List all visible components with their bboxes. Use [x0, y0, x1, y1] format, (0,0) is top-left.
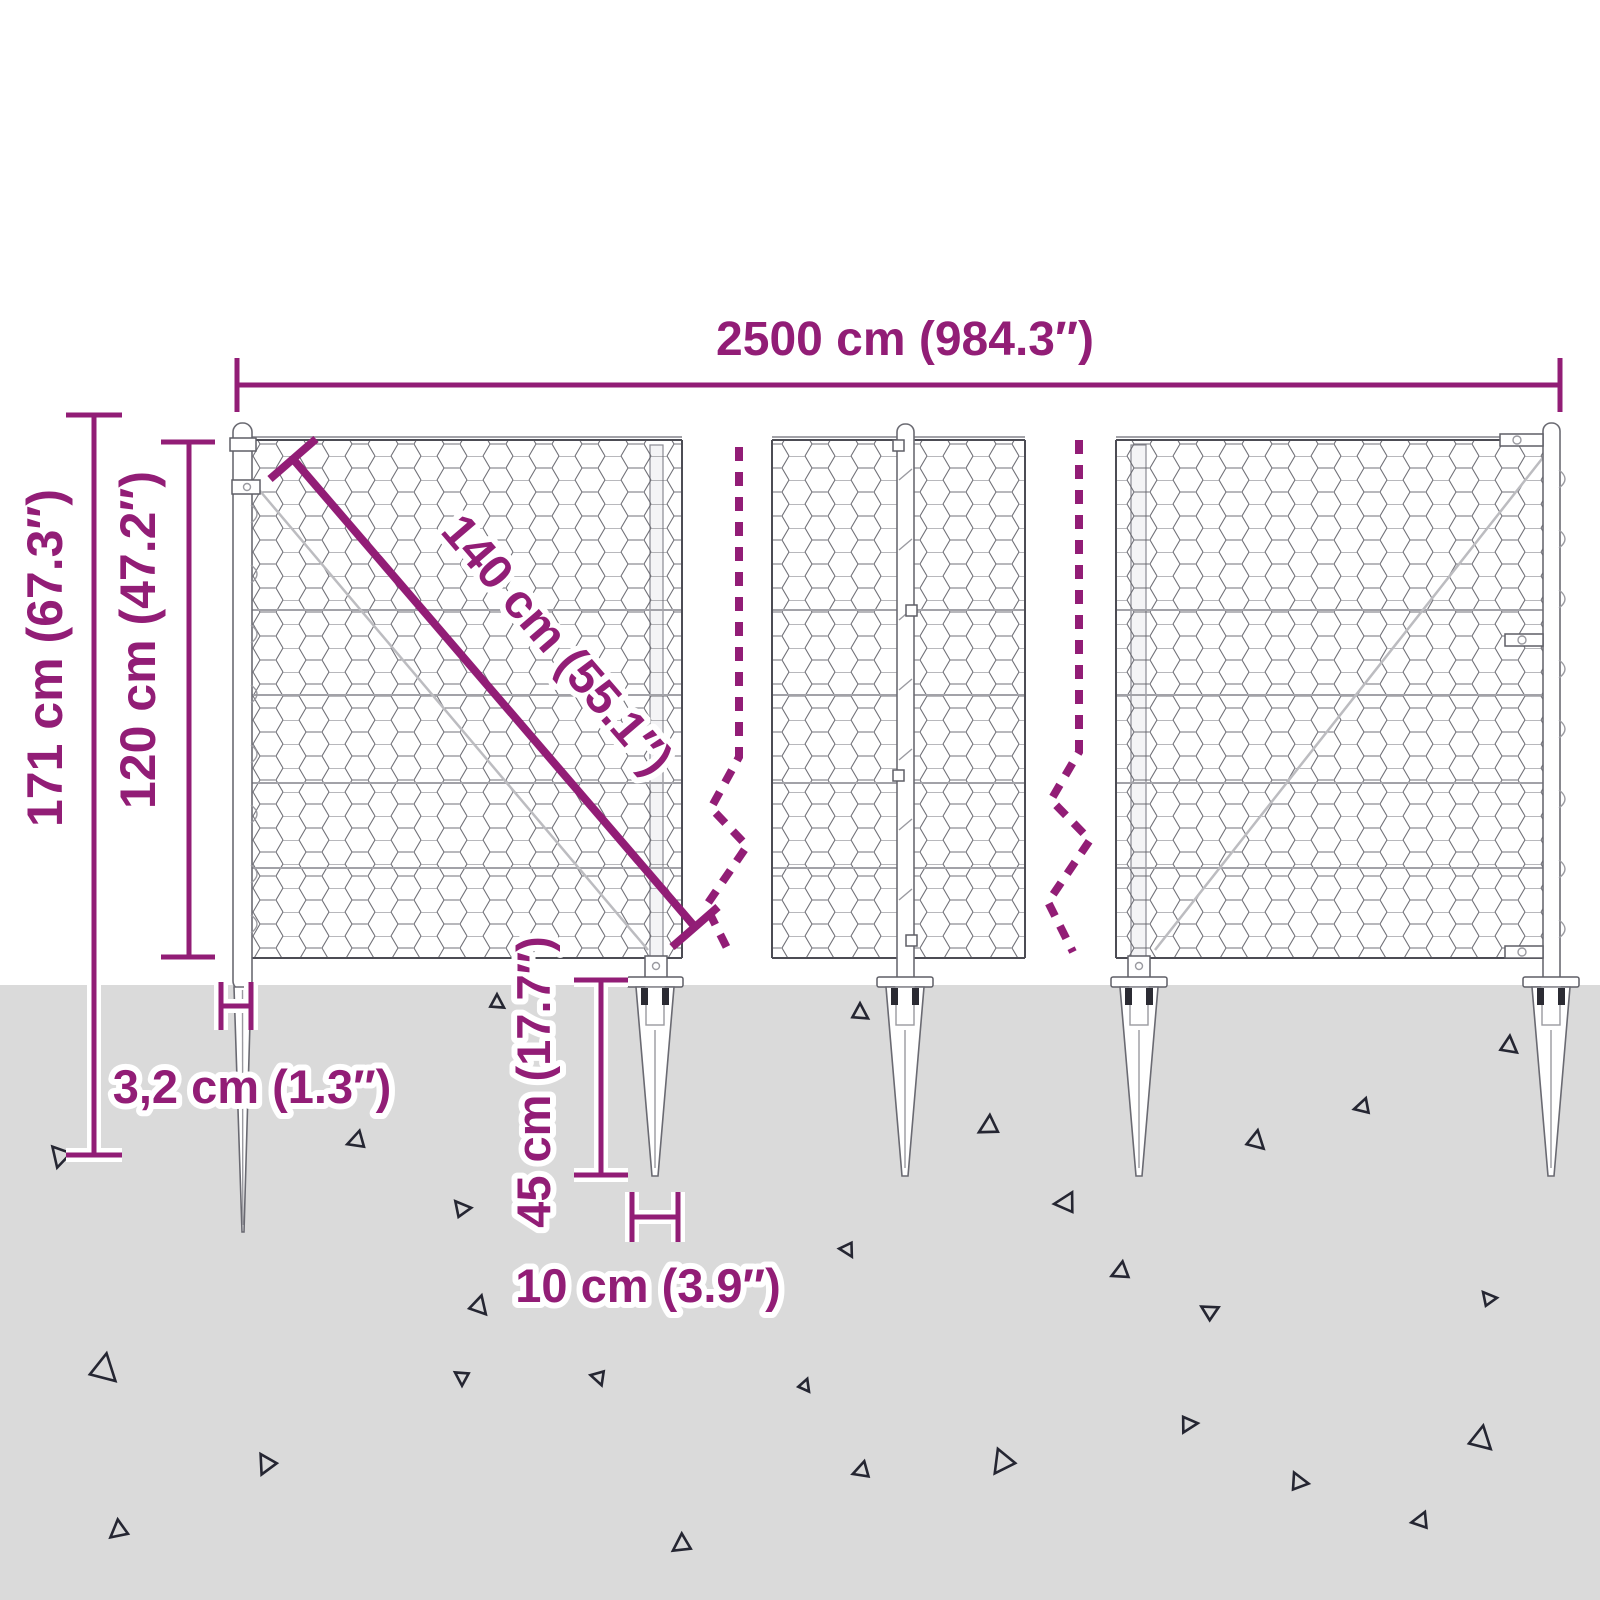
post-width-label: 3,2 cm (1.3″): [113, 1060, 392, 1113]
fence-height-label: 120 cm (47.2″): [110, 471, 166, 809]
mesh-panel-3: [1116, 437, 1545, 958]
break-line-1: [706, 447, 747, 956]
dimension-fence-height: 120 cm (47.2″): [110, 442, 215, 957]
product-dimension-diagram: 2500 cm (984.3″) 171 cm (67.3″) 120 cm (…: [0, 0, 1600, 1600]
diagram-canvas: 2500 cm (984.3″) 171 cm (67.3″) 120 cm (…: [0, 0, 1600, 1600]
middle-post: [893, 424, 917, 985]
total-width-label: 2500 cm (984.3″): [716, 313, 1094, 366]
spike-width-label: 10 cm (3.9″): [515, 1259, 780, 1312]
dimension-total-width: 2500 cm (984.3″): [237, 313, 1560, 412]
spike-depth-label: 45 cm (17.7″): [507, 936, 560, 1228]
total-height-label: 171 cm (67.3″): [17, 489, 73, 827]
